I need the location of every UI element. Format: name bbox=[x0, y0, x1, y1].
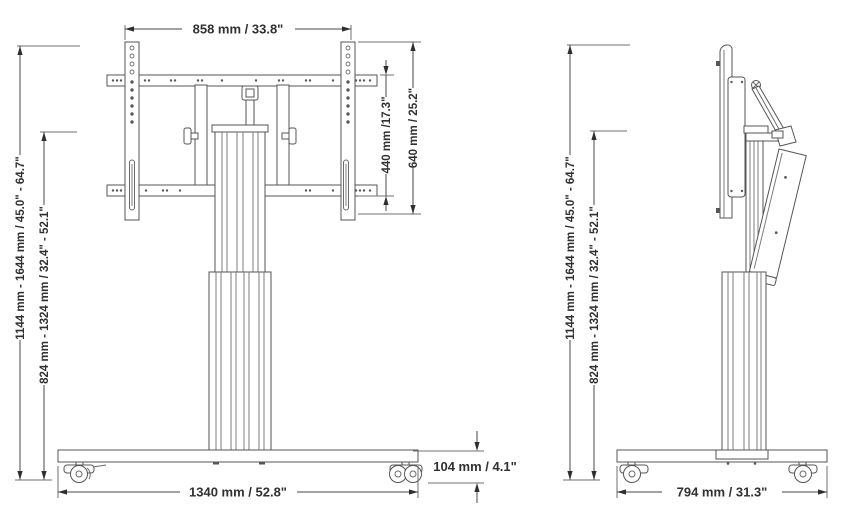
column-cap-front bbox=[212, 125, 268, 132]
dim-height-range-max-side-label: 1144 mm - 1644 mm / 45.0" - 64.7" bbox=[565, 156, 577, 340]
dim-base-width-label: 1340 mm / 52.8" bbox=[189, 485, 287, 500]
lift-column-front bbox=[209, 125, 271, 452]
mount-rail-right bbox=[341, 42, 355, 220]
base-side bbox=[617, 450, 827, 465]
dim-base-depth-label: 794 mm / 31.3" bbox=[677, 485, 768, 500]
technical-drawing-page: 858 mm / 33.8" 440 mm /17.3" 640 mm / 25… bbox=[0, 0, 850, 518]
tilt-arm bbox=[746, 81, 796, 147]
caster-front-left bbox=[64, 462, 106, 483]
mount-rail-left bbox=[125, 42, 139, 220]
dim-base-height-label: 104 mm / 4.1" bbox=[433, 459, 517, 474]
side-view: 1144 mm - 1644 mm / 45.0" - 64.7" 824 mm… bbox=[563, 45, 827, 500]
dim-width-top: 858 mm / 33.8" bbox=[125, 22, 351, 41]
column-outer-front bbox=[209, 272, 271, 452]
center-clamp bbox=[242, 86, 258, 126]
front-view: 858 mm / 33.8" 440 mm /17.3" 640 mm / 25… bbox=[15, 22, 517, 504]
dim-height-range-max-front-label: 1144 mm - 1644 mm / 45.0" - 64.7" bbox=[15, 156, 27, 340]
crossbar-top bbox=[107, 75, 377, 86]
dim-height-range-min-front-label: 824 mm - 1324 mm / 32.4" - 52.1" bbox=[39, 206, 51, 384]
dim-base-height: 104 mm / 4.1" bbox=[413, 431, 517, 503]
display-stand-dimension-drawing: 858 mm / 33.8" 440 mm /17.3" 640 mm / 25… bbox=[0, 0, 850, 518]
column-outer-side bbox=[722, 272, 766, 452]
dim-height-range-min-front: 824 mm - 1324 mm / 32.4" - 52.1" bbox=[39, 132, 77, 480]
dim-base-width: 1340 mm / 52.8" bbox=[58, 466, 418, 500]
dim-height-range-min-side-label: 824 mm - 1324 mm / 32.4" - 52.1" bbox=[589, 206, 601, 384]
caster-front-right bbox=[390, 462, 423, 483]
caster-side-left bbox=[620, 462, 648, 483]
base-front bbox=[58, 450, 418, 465]
dim-inner-height-label: 440 mm /17.3" bbox=[381, 96, 393, 173]
dim-height-range-min-side: 824 mm - 1324 mm / 32.4" - 52.1" bbox=[589, 131, 627, 480]
bracket-plate-profile bbox=[728, 77, 745, 197]
dim-outer-height-label: 640 mm / 25.2" bbox=[408, 88, 420, 168]
column-foot-plate bbox=[716, 450, 768, 459]
dim-width-top-label: 858 mm / 33.8" bbox=[193, 22, 284, 37]
column-cap-side bbox=[744, 126, 768, 133]
caster-side-right bbox=[789, 462, 817, 483]
